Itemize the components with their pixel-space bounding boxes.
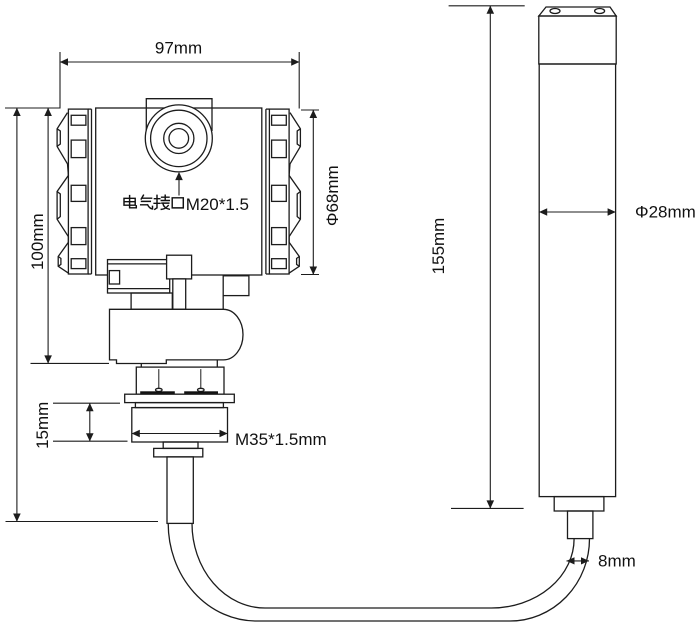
- svg-text:97mm: 97mm: [155, 39, 202, 58]
- svg-text:Φ68mm: Φ68mm: [323, 165, 342, 226]
- svg-text:100mm: 100mm: [28, 213, 47, 270]
- svg-text:M35*1.5mm: M35*1.5mm: [235, 430, 327, 449]
- svg-text:Φ28mm: Φ28mm: [635, 203, 696, 222]
- svg-text:8mm: 8mm: [598, 552, 636, 571]
- svg-text:M20*1.5: M20*1.5: [186, 195, 249, 214]
- svg-text:155mm: 155mm: [429, 218, 448, 275]
- svg-text:15mm: 15mm: [33, 402, 52, 449]
